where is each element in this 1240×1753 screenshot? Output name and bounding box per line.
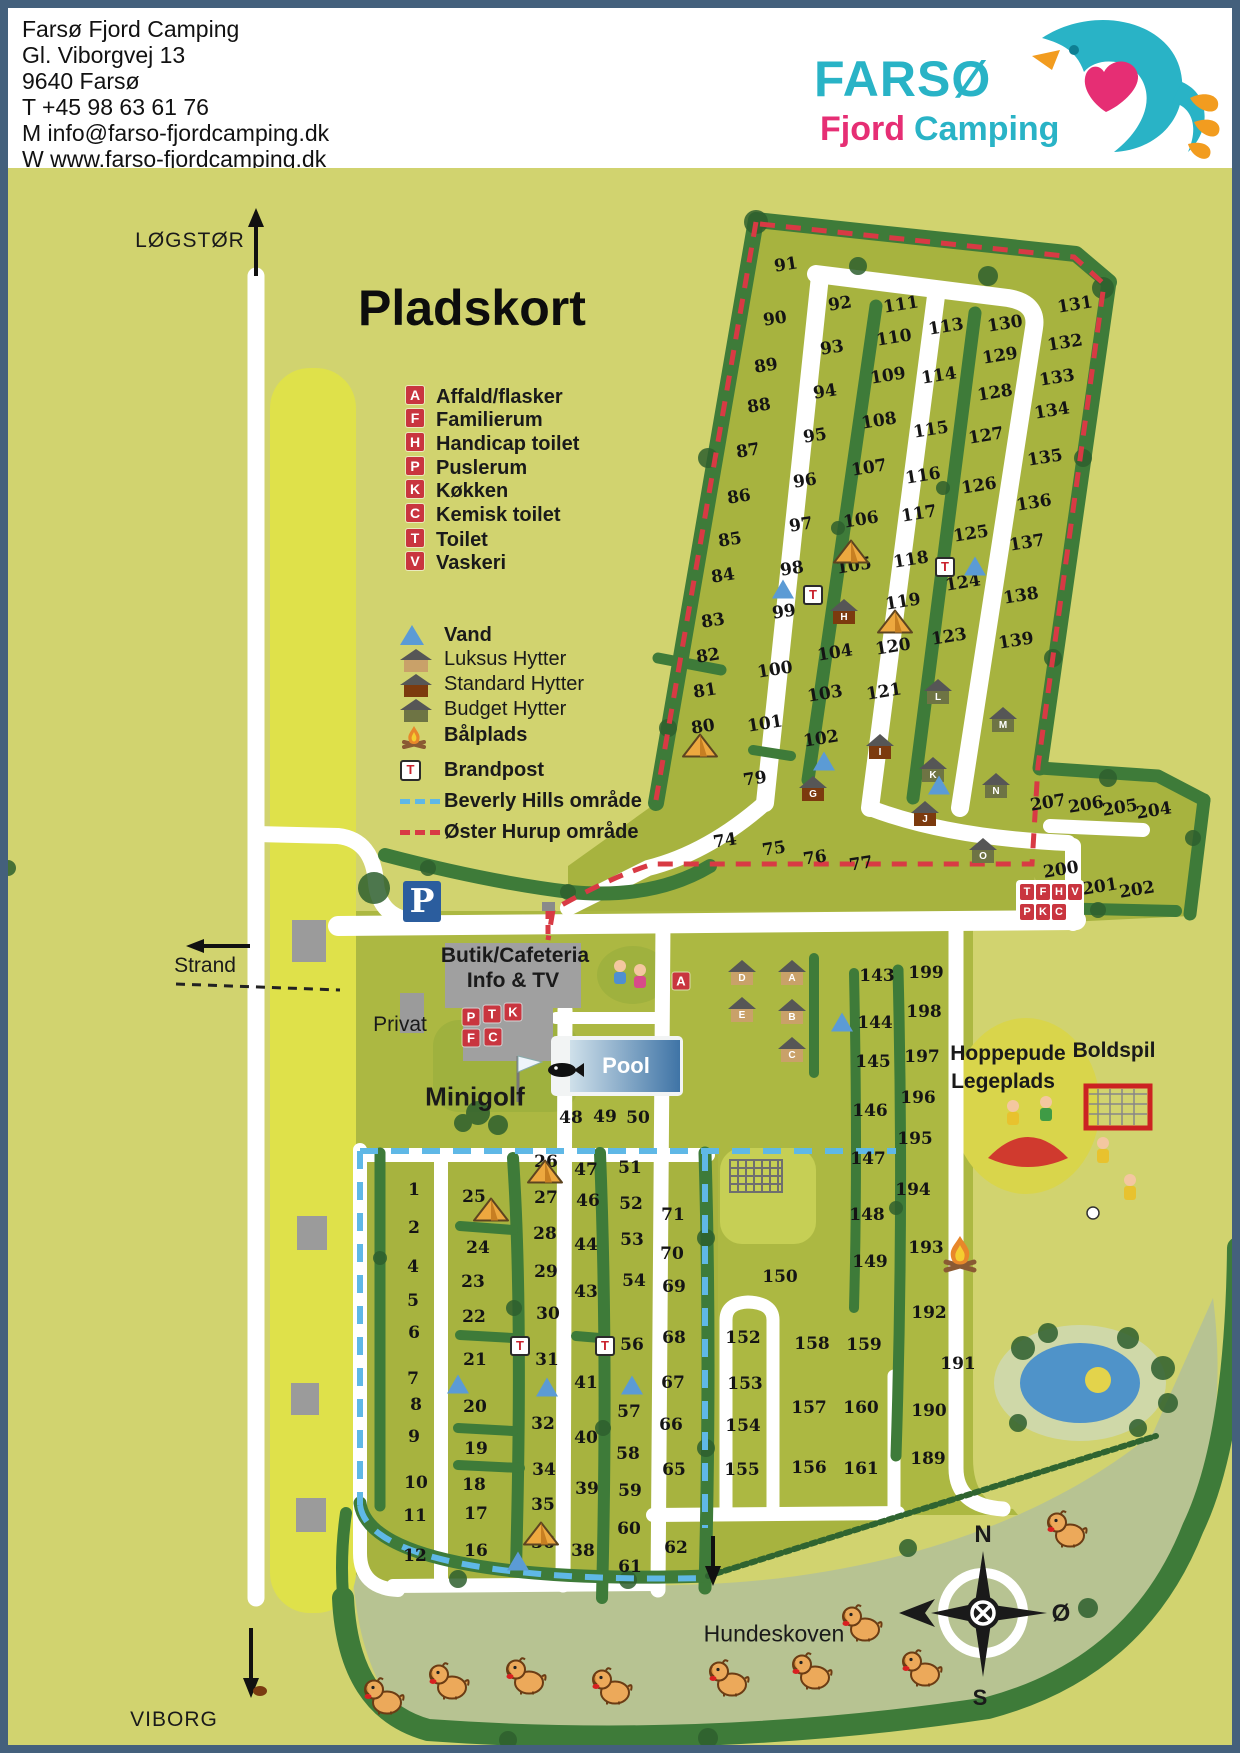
water-point-icon bbox=[831, 1013, 853, 1032]
plot-111: 111 bbox=[882, 292, 920, 317]
cabin-roof-icon bbox=[911, 801, 939, 813]
plot-128: 128 bbox=[976, 380, 1014, 405]
plot-161: 161 bbox=[843, 1459, 879, 1479]
cabin-roof-icon bbox=[778, 960, 806, 972]
plot-8: 8 bbox=[410, 1395, 422, 1415]
legend-service-icon-V: V bbox=[406, 552, 424, 570]
legend-item-label: Standard Hytter bbox=[444, 673, 584, 696]
plot-107: 107 bbox=[850, 455, 888, 480]
label-privat: Privat bbox=[373, 1013, 427, 1037]
plot-104: 104 bbox=[816, 640, 854, 665]
plot-40: 40 bbox=[574, 1428, 598, 1448]
label-hoppepude2: Legeplads bbox=[951, 1070, 1055, 1094]
plot-30: 30 bbox=[536, 1304, 560, 1324]
plot-61: 61 bbox=[618, 1557, 642, 1577]
plot-18: 18 bbox=[462, 1475, 486, 1495]
plot-29: 29 bbox=[534, 1262, 558, 1282]
plot-108: 108 bbox=[860, 408, 898, 433]
plot-193: 193 bbox=[908, 1238, 944, 1258]
legend-beverly-icon bbox=[400, 791, 440, 804]
label-viborg: VIBORG bbox=[130, 1708, 218, 1732]
legend-service-label: Puslerum bbox=[436, 457, 527, 480]
plot-95: 95 bbox=[802, 424, 829, 447]
plot-156: 156 bbox=[791, 1458, 827, 1478]
plot-135: 135 bbox=[1026, 445, 1064, 470]
plot-138: 138 bbox=[1002, 583, 1040, 608]
cabin-roof-icon bbox=[919, 757, 947, 769]
plot-59: 59 bbox=[618, 1481, 642, 1501]
brandpost-icon: T bbox=[595, 1336, 615, 1356]
plot-150: 150 bbox=[762, 1267, 798, 1287]
water-point-icon bbox=[621, 1376, 643, 1395]
plot-201: 201 bbox=[1081, 874, 1119, 899]
label-pool: Pool bbox=[602, 1053, 650, 1079]
plot-94: 94 bbox=[812, 380, 839, 403]
service-box-C: C bbox=[485, 1029, 502, 1046]
cabin-letter: M bbox=[992, 719, 1014, 732]
tent-icon bbox=[832, 539, 870, 570]
legend-service-label: Handicap toilet bbox=[436, 433, 579, 456]
plot-143: 143 bbox=[859, 966, 895, 986]
plot-137: 137 bbox=[1008, 530, 1046, 555]
plot-103: 103 bbox=[806, 681, 844, 706]
plot-134: 134 bbox=[1033, 398, 1071, 423]
cabin-roof-icon bbox=[728, 997, 756, 1009]
cabin-roof-icon bbox=[728, 960, 756, 972]
cabin-D: D bbox=[728, 960, 756, 986]
plot-58: 58 bbox=[616, 1444, 640, 1464]
cabin-H: H bbox=[830, 599, 858, 625]
plot-4: 4 bbox=[407, 1257, 419, 1277]
cabin-roof-icon bbox=[866, 734, 894, 746]
plot-152: 152 bbox=[725, 1328, 761, 1348]
plot-149: 149 bbox=[852, 1252, 888, 1272]
plot-118: 118 bbox=[892, 547, 930, 572]
plot-41: 41 bbox=[574, 1373, 598, 1393]
legend-item-label: Luksus Hytter bbox=[444, 648, 566, 671]
plot-198: 198 bbox=[906, 1002, 942, 1022]
cabin-G: G bbox=[799, 776, 827, 802]
plot-46: 46 bbox=[576, 1191, 600, 1211]
plot-2: 2 bbox=[408, 1218, 420, 1238]
plot-127: 127 bbox=[967, 423, 1005, 448]
plot-148: 148 bbox=[849, 1205, 885, 1225]
dog-icon bbox=[899, 1647, 943, 1694]
pladskort-map-page: Farsø Fjord Camping Gl. Viborgvej 13 964… bbox=[0, 0, 1240, 1753]
plot-158: 158 bbox=[794, 1334, 830, 1354]
plot-47: 47 bbox=[574, 1160, 598, 1180]
plot-83: 83 bbox=[700, 609, 727, 632]
plot-43: 43 bbox=[574, 1282, 598, 1302]
legend-budget-icon bbox=[400, 699, 432, 723]
plot-197: 197 bbox=[904, 1047, 940, 1067]
service-cluster-box-C: C bbox=[1052, 904, 1066, 920]
water-point-icon bbox=[813, 752, 835, 771]
legend-luksus-icon bbox=[400, 649, 432, 673]
plot-109: 109 bbox=[869, 363, 907, 388]
legend-item-label: Bålplads bbox=[444, 724, 527, 747]
compass-east-label: Ø bbox=[1052, 1600, 1071, 1628]
plot-136: 136 bbox=[1015, 490, 1053, 515]
plot-101: 101 bbox=[746, 711, 784, 736]
plot-60: 60 bbox=[617, 1519, 641, 1539]
legend-item-label: Brandpost bbox=[444, 759, 544, 782]
plot-52: 52 bbox=[619, 1194, 643, 1214]
plot-48: 48 bbox=[559, 1108, 583, 1128]
plot-115: 115 bbox=[912, 417, 950, 442]
plot-22: 22 bbox=[462, 1307, 486, 1327]
cabin-J: J bbox=[911, 801, 939, 827]
legend-baalplads-icon bbox=[400, 725, 428, 756]
plot-194: 194 bbox=[895, 1180, 931, 1200]
plot-49: 49 bbox=[593, 1107, 617, 1127]
plot-34: 34 bbox=[532, 1460, 556, 1480]
plot-38: 38 bbox=[571, 1541, 595, 1561]
plot-50: 50 bbox=[626, 1108, 650, 1128]
plot-93: 93 bbox=[819, 336, 846, 359]
plot-206: 206 bbox=[1067, 792, 1105, 817]
plot-116: 116 bbox=[904, 463, 942, 488]
plot-77: 77 bbox=[848, 852, 875, 875]
legend-service-label: Køkken bbox=[436, 480, 508, 503]
compass-south-label: S bbox=[973, 1685, 988, 1711]
legend-service-icon-K: K bbox=[406, 480, 424, 498]
plot-79: 79 bbox=[742, 767, 769, 790]
service-cluster-box-F: F bbox=[1036, 884, 1050, 900]
water-point-icon bbox=[536, 1378, 558, 1397]
plot-76: 76 bbox=[802, 846, 829, 869]
cabin-N: N bbox=[982, 773, 1010, 799]
cabin-A: A bbox=[778, 960, 806, 986]
plot-67: 67 bbox=[661, 1373, 685, 1393]
legend-service-label: Familierum bbox=[436, 409, 543, 432]
plot-9: 9 bbox=[408, 1427, 420, 1447]
parking-sign: P bbox=[403, 881, 441, 922]
label-butik1: Butik/Cafeteria bbox=[441, 944, 589, 968]
plot-68: 68 bbox=[662, 1328, 686, 1348]
legend-item-label: Vand bbox=[444, 624, 492, 647]
plot-75: 75 bbox=[761, 837, 788, 860]
label-strand: Strand bbox=[174, 954, 236, 978]
plot-117: 117 bbox=[900, 501, 938, 526]
service-box-K: K bbox=[505, 1004, 522, 1021]
cabin-roof-icon bbox=[778, 999, 806, 1011]
plot-84: 84 bbox=[710, 564, 737, 587]
plot-113: 113 bbox=[927, 314, 965, 339]
brandpost-icon: T bbox=[935, 557, 955, 577]
plot-207: 207 bbox=[1029, 790, 1067, 815]
cabin-roof-icon bbox=[924, 679, 952, 691]
service-box-P: P bbox=[463, 1009, 480, 1026]
plot-99: 99 bbox=[771, 600, 798, 623]
plot-54: 54 bbox=[622, 1271, 646, 1291]
plot-74: 74 bbox=[712, 829, 739, 852]
plot-89: 89 bbox=[753, 354, 780, 377]
cabin-roof-icon bbox=[989, 707, 1017, 719]
plot-100: 100 bbox=[756, 657, 794, 682]
plot-153: 153 bbox=[727, 1374, 763, 1394]
cabin-letter: A bbox=[781, 972, 803, 985]
cabin-E: E bbox=[728, 997, 756, 1023]
plot-28: 28 bbox=[533, 1224, 557, 1244]
plot-10: 10 bbox=[404, 1473, 428, 1493]
cabin-letter: I bbox=[869, 746, 891, 759]
cabin-roof-icon bbox=[969, 838, 997, 850]
plot-1: 1 bbox=[408, 1180, 420, 1200]
plot-125: 125 bbox=[952, 521, 990, 546]
plot-90: 90 bbox=[762, 307, 789, 330]
plot-57: 57 bbox=[617, 1402, 641, 1422]
legend-service-label: Toilet bbox=[436, 529, 488, 552]
legend-service-icon-F: F bbox=[406, 409, 424, 427]
compass-north-label: N bbox=[974, 1521, 991, 1549]
plot-139: 139 bbox=[997, 628, 1035, 653]
tent-icon bbox=[522, 1521, 560, 1552]
label-title: Pladskort bbox=[358, 279, 586, 337]
cabin-I: I bbox=[866, 734, 894, 760]
dog-icon bbox=[503, 1655, 547, 1702]
plot-81: 81 bbox=[692, 679, 719, 702]
legend-item-label: Budget Hytter bbox=[444, 698, 566, 721]
legend-service-icon-A: A bbox=[406, 386, 424, 404]
plot-191: 191 bbox=[940, 1354, 976, 1374]
plot-5: 5 bbox=[407, 1291, 419, 1311]
plot-51: 51 bbox=[618, 1158, 642, 1178]
plot-97: 97 bbox=[788, 513, 815, 536]
dog-icon bbox=[426, 1660, 470, 1707]
plot-154: 154 bbox=[725, 1416, 761, 1436]
plot-202: 202 bbox=[1118, 877, 1156, 902]
label-boldspil: Boldspil bbox=[1073, 1039, 1156, 1063]
cabin-roof-icon bbox=[982, 773, 1010, 785]
plot-20: 20 bbox=[463, 1397, 487, 1417]
cabin-letter: L bbox=[927, 691, 949, 704]
plot-204: 204 bbox=[1135, 798, 1173, 823]
plot-123: 123 bbox=[930, 624, 968, 649]
plot-92: 92 bbox=[827, 292, 854, 315]
cabin-letter: N bbox=[985, 785, 1007, 798]
tent-icon bbox=[472, 1197, 510, 1228]
plot-98: 98 bbox=[779, 557, 806, 580]
label-minigolf: Minigolf bbox=[425, 1082, 525, 1113]
label-hundeskoven: Hundeskoven bbox=[704, 1621, 845, 1648]
plot-189: 189 bbox=[910, 1449, 946, 1469]
legend-service-label: Kemisk toilet bbox=[436, 504, 560, 527]
plot-121: 121 bbox=[865, 679, 903, 704]
service-cluster-box-T: T bbox=[1020, 884, 1034, 900]
plot-133: 133 bbox=[1038, 365, 1076, 390]
plot-7: 7 bbox=[407, 1369, 419, 1389]
dog-icon bbox=[839, 1602, 883, 1649]
plot-69: 69 bbox=[662, 1277, 686, 1297]
legend-item-label: Øster Hurup område bbox=[444, 821, 638, 844]
cabin-roof-icon bbox=[778, 1037, 806, 1049]
dog-icon bbox=[706, 1657, 750, 1704]
cabin-letter: J bbox=[914, 813, 936, 826]
cabin-letter: H bbox=[833, 611, 855, 624]
dog-icon bbox=[789, 1650, 833, 1697]
plot-147: 147 bbox=[850, 1149, 886, 1169]
legend-service-icon-H: H bbox=[406, 433, 424, 451]
label-hoppepude1: Hoppepude bbox=[950, 1042, 1066, 1066]
plot-19: 19 bbox=[464, 1439, 488, 1459]
plot-91: 91 bbox=[773, 253, 800, 276]
label-butik2: Info & TV bbox=[467, 969, 559, 993]
plot-205: 205 bbox=[1101, 795, 1139, 820]
plot-27: 27 bbox=[534, 1188, 558, 1208]
plot-146: 146 bbox=[852, 1101, 888, 1121]
plot-88: 88 bbox=[746, 394, 773, 417]
service-cluster: TFHVPKC bbox=[1016, 880, 1084, 926]
plot-160: 160 bbox=[843, 1398, 879, 1418]
plot-62: 62 bbox=[664, 1538, 688, 1558]
water-point-icon bbox=[447, 1375, 469, 1394]
legend-service-icon-T: T bbox=[406, 529, 424, 547]
service-cluster-box-V: V bbox=[1068, 884, 1082, 900]
plot-53: 53 bbox=[620, 1230, 644, 1250]
plot-17: 17 bbox=[464, 1504, 488, 1524]
water-point-icon bbox=[964, 557, 986, 576]
plot-87: 87 bbox=[735, 439, 762, 462]
plot-66: 66 bbox=[659, 1415, 683, 1435]
plot-82: 82 bbox=[695, 644, 722, 667]
service-cluster-box-K: K bbox=[1036, 904, 1050, 920]
water-point-icon bbox=[507, 1552, 529, 1571]
service-cluster-box-H: H bbox=[1052, 884, 1066, 900]
water-point-icon bbox=[772, 580, 794, 599]
plot-157: 157 bbox=[791, 1398, 827, 1418]
cabin-letter: D bbox=[731, 972, 753, 985]
plot-65: 65 bbox=[662, 1460, 686, 1480]
dog-icon bbox=[361, 1675, 405, 1722]
legend-service-icon-P: P bbox=[406, 457, 424, 475]
plot-114: 114 bbox=[920, 363, 958, 388]
plot-24: 24 bbox=[466, 1238, 490, 1258]
legend-item-label: Beverly Hills område bbox=[444, 790, 642, 813]
plot-21: 21 bbox=[463, 1350, 487, 1370]
plot-71: 71 bbox=[661, 1205, 685, 1225]
plot-102: 102 bbox=[802, 726, 840, 751]
plot-96: 96 bbox=[792, 469, 819, 492]
plot-85: 85 bbox=[717, 528, 744, 551]
cabin-O: O bbox=[969, 838, 997, 864]
campsite-map: P N Ø S PladskortLØGSTØRVIBORGStrandPriv… bbox=[8, 168, 1232, 1745]
plot-12: 12 bbox=[403, 1546, 427, 1566]
plot-35: 35 bbox=[531, 1495, 555, 1515]
plot-159: 159 bbox=[846, 1335, 882, 1355]
brandpost-icon: T bbox=[803, 585, 823, 605]
service-cluster-box-P: P bbox=[1020, 904, 1034, 920]
plot-126: 126 bbox=[960, 473, 998, 498]
plot-106: 106 bbox=[842, 507, 880, 532]
plot-131: 131 bbox=[1056, 292, 1094, 317]
tent-icon bbox=[526, 1159, 564, 1190]
legend-vand-icon bbox=[400, 625, 424, 645]
service-box-F: F bbox=[463, 1030, 480, 1047]
plot-145: 145 bbox=[855, 1052, 891, 1072]
plot-192: 192 bbox=[911, 1303, 947, 1323]
plot-190: 190 bbox=[911, 1401, 947, 1421]
plot-32: 32 bbox=[531, 1414, 555, 1434]
plot-144: 144 bbox=[857, 1013, 893, 1033]
plot-86: 86 bbox=[726, 485, 753, 508]
cabin-letter: O bbox=[972, 850, 994, 863]
dog-icon bbox=[589, 1665, 633, 1712]
plot-6: 6 bbox=[408, 1323, 420, 1343]
plot-196: 196 bbox=[900, 1088, 936, 1108]
cabin-letter: C bbox=[781, 1049, 803, 1062]
plot-11: 11 bbox=[403, 1506, 427, 1526]
plot-195: 195 bbox=[897, 1129, 933, 1149]
plot-16: 16 bbox=[464, 1541, 488, 1561]
tent-icon bbox=[681, 733, 719, 764]
cabin-L: L bbox=[924, 679, 952, 705]
water-point-icon bbox=[928, 776, 950, 795]
legend-service-label: Affald/flasker bbox=[436, 386, 563, 409]
plot-44: 44 bbox=[574, 1235, 598, 1255]
cabin-C: C bbox=[778, 1037, 806, 1063]
plot-130: 130 bbox=[986, 311, 1024, 336]
cabin-roof-icon bbox=[799, 776, 827, 788]
legend-service-icon-C: C bbox=[406, 504, 424, 522]
service-box-A: A bbox=[673, 973, 690, 990]
plot-31: 31 bbox=[535, 1350, 559, 1370]
plot-39: 39 bbox=[575, 1479, 599, 1499]
brandpost-icon: T bbox=[510, 1336, 530, 1356]
cabin-letter: B bbox=[781, 1011, 803, 1024]
plot-199: 199 bbox=[908, 963, 944, 983]
plot-200: 200 bbox=[1042, 857, 1080, 882]
cabin-letter: E bbox=[731, 1009, 753, 1022]
cabin-letter: G bbox=[802, 788, 824, 801]
dog-icon bbox=[1044, 1508, 1088, 1555]
cabin-B: B bbox=[778, 999, 806, 1025]
plot-132: 132 bbox=[1046, 330, 1084, 355]
plot-155: 155 bbox=[724, 1460, 760, 1480]
plot-70: 70 bbox=[660, 1244, 684, 1264]
plot-110: 110 bbox=[875, 325, 913, 350]
service-box-T: T bbox=[484, 1006, 501, 1023]
legend-standard-icon bbox=[400, 674, 432, 698]
legend-oster-icon bbox=[400, 822, 440, 835]
plot-129: 129 bbox=[981, 343, 1019, 368]
cabin-roof-icon bbox=[830, 599, 858, 611]
plot-56: 56 bbox=[620, 1335, 644, 1355]
legend-service-label: Vaskeri bbox=[436, 552, 506, 575]
cabin-M: M bbox=[989, 707, 1017, 733]
map-overlay: P N Ø S PladskortLØGSTØRVIBORGStrandPriv… bbox=[8, 8, 1240, 1753]
plot-23: 23 bbox=[461, 1272, 485, 1292]
tent-icon bbox=[876, 609, 914, 640]
label-logstor: LØGSTØR bbox=[135, 229, 245, 253]
